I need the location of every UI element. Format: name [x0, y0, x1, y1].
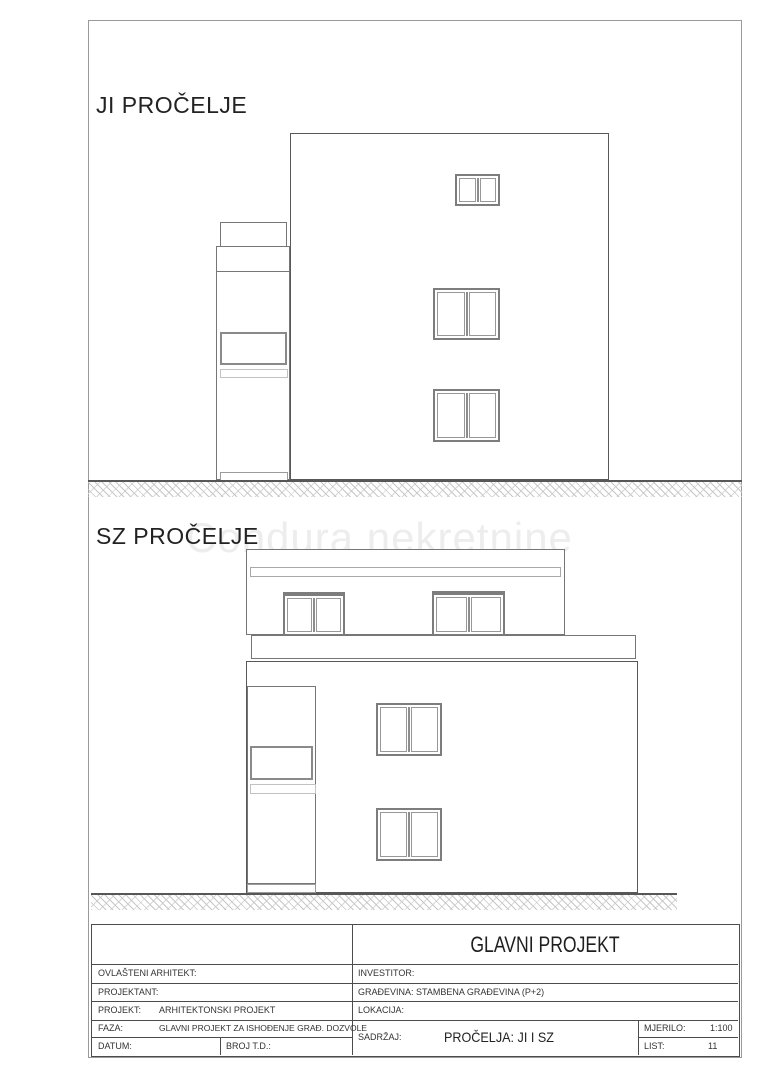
sz-window-top [376, 703, 442, 756]
window-pane [459, 178, 476, 202]
sz-ground-hatch [91, 895, 677, 910]
sz-annex-sill-band [250, 784, 316, 794]
tb-lokacija-label: LOKACIJA: [358, 1001, 404, 1020]
tb-sadrzaj-value: PROČELJA: JI I SZ [444, 1020, 554, 1055]
window-pane [469, 393, 497, 438]
sz-annex-window [250, 746, 313, 780]
ji-ground-hatch [88, 482, 742, 497]
tb-broj-td-label: BROJ T.D.: [226, 1037, 271, 1055]
sz-door-right [432, 591, 505, 635]
window-pane [411, 812, 438, 857]
ji-annex-top-box [220, 222, 287, 247]
tb-projekt-label: PROJEKT: [98, 1001, 141, 1020]
ji-ground-line [88, 480, 742, 482]
drawing-sheet: Condura nekretnine JI PROČELJE SZ PROČEL… [0, 0, 764, 1080]
tb-gradevina-value: STAMBENA GRAĐEVINA (P+2) [416, 983, 544, 1001]
ji-annex-sill-band [220, 369, 288, 378]
tb-gradevina-label: GRAĐEVINA: [358, 983, 414, 1001]
sz-door-left [283, 592, 345, 635]
ji-annex-band-line [216, 271, 290, 272]
tb-line [352, 1001, 738, 1002]
door-mullion [468, 597, 470, 632]
elevation-sz-label: SZ PROČELJE [96, 523, 259, 550]
elevation-ji-label: JI PROČELJE [96, 92, 247, 119]
tb-header-glavni-projekt: GLAVNI PROJEKT [391, 925, 700, 964]
sz-balcony-slab [251, 635, 636, 659]
window-mullion [466, 292, 468, 336]
sz-ground-line [91, 893, 677, 895]
tb-faza-label: FAZA: [98, 1020, 123, 1037]
tb-projektant-label: PROJEKTANT: [98, 983, 158, 1001]
ji-annex-window [220, 332, 287, 365]
ji-annex-base [220, 472, 288, 480]
tb-list-label: LIST: [644, 1037, 665, 1055]
tb-list-value: 11 [708, 1037, 717, 1055]
tb-projekt-value: ARHITEKTONSKI PROJEKT [159, 1001, 275, 1020]
door-pane [436, 597, 467, 632]
window-pane [380, 707, 407, 752]
sz-annex-base [247, 884, 316, 893]
tb-datum-divider [220, 1037, 221, 1055]
sz-window-bottom [376, 808, 442, 861]
window-mullion [466, 393, 468, 438]
tb-investitor-label: INVESTITOR: [358, 964, 414, 983]
window-mullion [408, 707, 410, 752]
door-pane [471, 597, 502, 632]
window-pane [480, 178, 497, 202]
tb-datum-label: DATUM: [98, 1037, 132, 1055]
tb-ovlasteni-arhitekt-label: OVLAŠTENI ARHITEKT: [98, 964, 197, 983]
ji-window-bottom [433, 389, 500, 442]
window-pane [380, 812, 407, 857]
tb-mjerilo-value: 1:100 [710, 1020, 733, 1037]
door-pane [287, 598, 312, 632]
door-mullion [313, 598, 315, 632]
ji-window-top [455, 174, 500, 206]
window-pane [437, 292, 465, 336]
window-mullion [408, 812, 410, 857]
sz-penthouse-parapet-band [250, 567, 561, 577]
tb-faza-value: GLAVNI PROJEKT ZA ISHOĐENJE GRAĐ. DOZVOL… [159, 1020, 367, 1037]
title-block: GLAVNI PROJEKT OVLAŠTENI ARHITEKT: PROJE… [91, 924, 740, 1057]
window-pane [469, 292, 497, 336]
tb-sadrzaj-label: SADRŽAJ: [358, 1020, 402, 1055]
tb-mjerilo-label: MJERILO: [644, 1020, 686, 1037]
window-pane [437, 393, 465, 438]
door-pane [316, 598, 341, 632]
ji-window-middle [433, 288, 500, 340]
window-mullion [477, 178, 479, 202]
window-pane [411, 707, 438, 752]
